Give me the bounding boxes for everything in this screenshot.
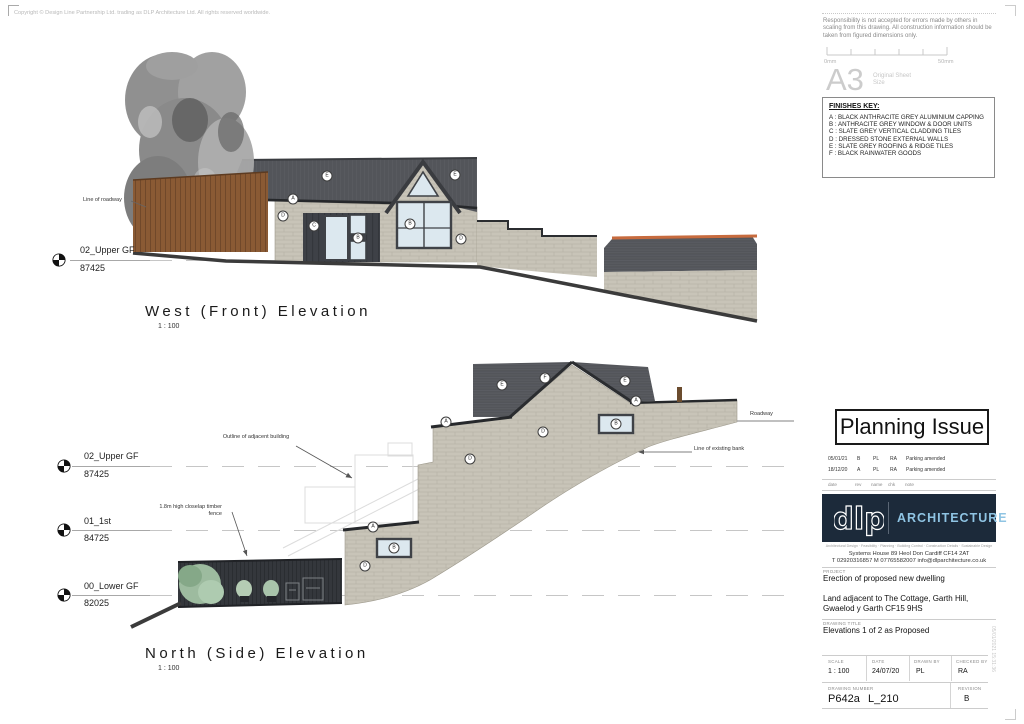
north-elevation-drawing — [131, 362, 794, 627]
adjacent-building-wall — [604, 270, 757, 320]
finish-callout-E: E — [497, 380, 508, 391]
firm-address: Systems House 89 Heol Don Cardiff CF14 2… — [822, 551, 996, 557]
finish-callout-B: B — [405, 219, 416, 230]
fence-note-leader — [232, 512, 247, 556]
revision-date: 05/01/21 — [828, 456, 847, 462]
north-datum-line-1 — [72, 466, 150, 467]
level-marker-west-upper-gf — [52, 253, 66, 267]
level-marker-north-first — [57, 523, 71, 537]
scale-ruler — [825, 44, 955, 58]
west-timber-fence — [133, 172, 268, 252]
north-level-name-3: 00_Lower GF — [84, 581, 139, 591]
drawing-title-value: Elevations 1 of 2 as Proposed — [823, 626, 929, 635]
firm-services: Architectural Design · Feasibility · Pla… — [822, 544, 996, 548]
revision-name: PL — [873, 467, 879, 473]
finishes-key-item: C : SLATE GREY VERTICAL CLADDING TILES — [829, 128, 990, 135]
north-level-name-1: 02_Upper GF — [84, 451, 139, 461]
west-roadway-leader — [131, 201, 146, 207]
north-ghost-outline — [283, 443, 425, 556]
revision-header-note: note — [905, 482, 914, 487]
north-level-name-2: 01_1st — [84, 516, 111, 526]
west-gable-window — [397, 202, 451, 248]
north-closelap-fence — [178, 559, 342, 607]
north-datum-dash-1 — [150, 466, 785, 467]
adjacent-building-roof — [604, 236, 757, 272]
north-datum-line-3 — [72, 595, 150, 596]
finish-callout-B: B — [611, 419, 622, 430]
svg-text:dlp: dlp — [834, 502, 884, 537]
west-elevation-drawing — [124, 52, 757, 321]
site-address-line1: Land adjacent to The Cottage, Garth Hill… — [823, 594, 968, 603]
north-level-value-1: 87425 — [84, 469, 109, 479]
west-datum-line — [70, 260, 150, 261]
west-stepped-wall — [477, 221, 597, 277]
revision-rev: A — [857, 467, 860, 473]
drawn-by-value: PL — [916, 668, 925, 675]
finish-callout-E: E — [620, 376, 631, 387]
scaling-disclaimer: Responsibility is not accepted for error… — [823, 18, 995, 40]
finish-callout-C: C — [309, 221, 320, 232]
north-ridge-left — [510, 362, 572, 417]
finish-callout-D: D — [465, 454, 476, 465]
drawing-number-label: DRAWING NUMBER — [828, 686, 874, 691]
firm-name: ARCHITECTURE — [897, 511, 1008, 525]
revision-chk: RA — [890, 456, 897, 462]
revision-header-chk: chk — [888, 482, 895, 487]
north-fence-note: 1.8m high closelap timber fence — [152, 504, 222, 517]
north-capping-1 — [431, 417, 512, 427]
revision-note: Parking amended — [906, 456, 945, 462]
west-entrance-window-upper — [350, 215, 366, 234]
finishes-key-item: B : ANTHRACITE GREY WINDOW & DOOR UNITS — [829, 121, 990, 128]
date-value: 24/07/20 — [872, 668, 899, 675]
north-level-value-3: 82025 — [84, 598, 109, 608]
west-tree — [124, 52, 254, 250]
finish-callout-D: D — [360, 561, 371, 572]
drawing-sheet: Copyright © Design Line Partnership Ltd.… — [0, 0, 1024, 724]
revision-date: 18/12/20 — [828, 467, 847, 473]
north-datum-dash-2 — [150, 530, 785, 531]
west-entrance-window-lower — [350, 241, 366, 260]
west-stone-wall — [275, 201, 477, 262]
revision-note: Parking amended — [906, 467, 945, 473]
west-gable-bargeboard — [386, 162, 460, 213]
west-main-roof — [226, 158, 477, 212]
north-capping-2 — [630, 400, 737, 403]
north-stone-walls — [345, 365, 737, 605]
level-marker-north-lower-gf — [57, 588, 71, 602]
sheet-size-label: A3 — [826, 62, 864, 98]
finishes-key-item: A : BLACK ANTHRACITE GREY ALUMINIUM CAPP… — [829, 114, 990, 121]
finish-callout-F: F — [540, 373, 551, 384]
west-gable-triangle-window — [408, 172, 438, 196]
site-address-line2: Gwaelod y Garth CF15 9HS — [823, 604, 923, 613]
finish-callout-E: E — [450, 170, 461, 181]
finish-callout-B: B — [353, 233, 364, 244]
finishes-key-item: E : SLATE GREY ROOFING & RIDGE TILES — [829, 143, 990, 150]
print-stamp: 05/01/2021 15:31:36 — [990, 626, 996, 710]
west-level-value: 87425 — [80, 263, 105, 273]
drawing-number-suffix: L_210 — [868, 693, 899, 705]
copyright-text: Copyright © Design Line Partnership Ltd.… — [14, 10, 270, 16]
firm-contacts: T 02920316857 M 07765582007 info@dlparch… — [822, 558, 996, 564]
planning-issue-stamp: Planning Issue — [835, 409, 989, 445]
north-datum-line-2 — [72, 530, 150, 531]
panel-divider — [822, 13, 996, 14]
finishes-key-item: D : DRESSED STONE EXTERNAL WALLS — [829, 136, 990, 143]
date-label: DATE — [872, 659, 885, 664]
project-description: Erection of proposed new dwelling — [823, 574, 945, 583]
firm-logo-block: dlp ARCHITECTURE — [822, 494, 996, 542]
corner-mark-bottom-right — [1005, 709, 1016, 720]
revision-rev: B — [857, 456, 860, 462]
north-window-upper — [599, 415, 633, 433]
north-roadway-note: Roadway — [750, 411, 773, 418]
finish-callout-A: A — [288, 194, 299, 205]
finishes-key-title: FINISHES KEY: — [829, 103, 990, 110]
dlp-logo: dlp — [834, 497, 884, 539]
west-elevation-scale: 1 : 100 — [158, 323, 179, 330]
west-entrance-cladding — [303, 213, 380, 262]
north-fence-furniture — [286, 578, 323, 600]
scale-value: 1 : 100 — [828, 668, 849, 675]
sheet-size-caption: Original Sheet Size — [873, 73, 923, 87]
finishes-key-item: F : BLACK RAINWATER GOODS — [829, 150, 990, 157]
north-ridge-right — [572, 362, 632, 402]
north-level-value-2: 84725 — [84, 533, 109, 543]
west-gable — [388, 163, 458, 211]
north-bank-note: Line of existing bank — [694, 446, 744, 453]
corner-mark-top-right — [1005, 5, 1016, 16]
west-datum-dash — [150, 260, 555, 261]
finish-callout-B: B — [389, 543, 400, 554]
drawn-by-label: DRAWN BY — [914, 659, 940, 664]
logo-divider — [888, 502, 889, 534]
finish-callout-D: D — [278, 211, 289, 222]
finish-callout-D: D — [538, 427, 549, 438]
north-roof-right — [572, 362, 655, 402]
north-datum-dash-3 — [150, 595, 785, 596]
north-elevation-title: North (Side) Elevation — [145, 645, 369, 662]
scale-ruler-end-label: 50mm — [938, 59, 954, 65]
north-elevation-scale: 1 : 100 — [158, 665, 179, 672]
north-timber-post — [677, 387, 682, 402]
west-entrance-door — [325, 216, 348, 260]
north-capping-3 — [343, 522, 419, 530]
west-level-name: 02_Upper GF — [80, 245, 135, 255]
west-elevation-title: West (Front) Elevation — [145, 303, 371, 320]
revision-header-rev: rev — [855, 482, 861, 487]
north-outline-note: Outline of adjacent building — [216, 434, 296, 441]
north-roof-left — [473, 362, 572, 417]
north-window-lower — [377, 539, 411, 557]
outline-note-leader — [296, 446, 352, 478]
finish-callout-A: A — [441, 417, 452, 428]
finish-callout-E: E — [322, 171, 333, 182]
revision-header-name: name — [871, 482, 883, 487]
revision-value: B — [964, 694, 969, 703]
north-fence-planting — [178, 564, 279, 604]
revision-chk: RA — [890, 467, 897, 473]
scale-label: SCALE — [828, 659, 844, 664]
finish-callout-A: A — [631, 396, 642, 407]
checked-by-label: CHECKED BY — [956, 659, 988, 664]
level-marker-north-upper-gf — [57, 459, 71, 473]
finish-callout-D: D — [456, 234, 467, 245]
revision-header-date: date — [828, 482, 837, 487]
west-eaves-capping — [226, 199, 395, 203]
adjacent-building-ridge — [612, 236, 757, 238]
finishes-key-box: FINISHES KEY: A : BLACK ANTHRACITE GREY … — [822, 97, 995, 178]
revision-label: REVISION — [958, 686, 981, 691]
checked-by-value: RA — [958, 668, 968, 675]
north-retaining-edge — [131, 603, 181, 627]
revision-name: PL — [873, 456, 879, 462]
west-roadway-note: Line of roadway — [83, 197, 122, 204]
drawing-number-value: P642a — [828, 693, 860, 705]
